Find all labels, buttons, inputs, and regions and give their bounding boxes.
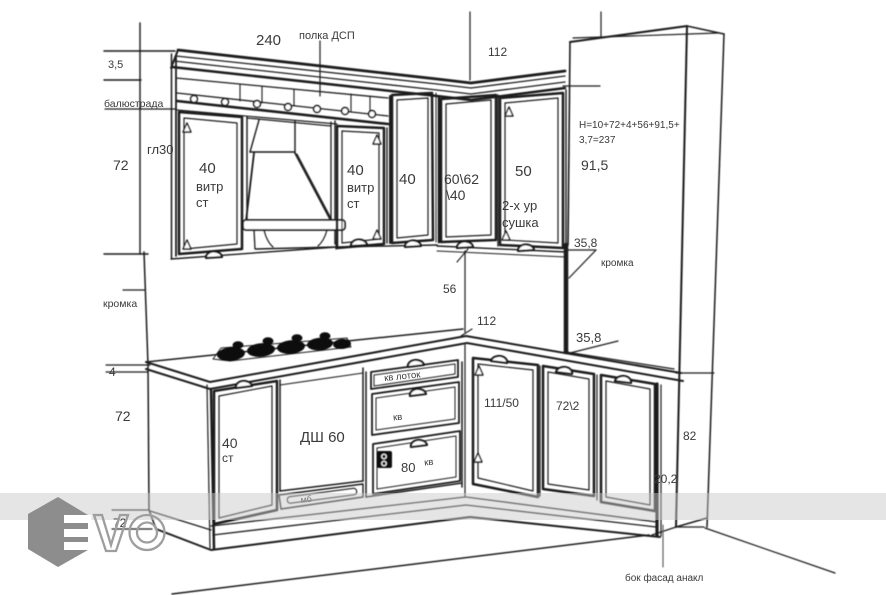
svg-text:20,2: 20,2: [654, 472, 678, 486]
svg-text:полка ДСП: полка ДСП: [299, 30, 355, 42]
svg-text:Н=10+72+4+56+91,5+: Н=10+72+4+56+91,5+: [579, 120, 680, 131]
svg-text:40: 40: [199, 160, 216, 177]
svg-text:3,7=237: 3,7=237: [579, 135, 616, 146]
svg-text:ст: ст: [196, 195, 209, 210]
svg-text:3,5: 3,5: [108, 59, 123, 71]
svg-text:72: 72: [115, 408, 131, 424]
svg-text:40: 40: [399, 171, 416, 188]
svg-text:балюстрада: балюстрада: [104, 98, 163, 110]
svg-text:гл30: гл30: [147, 142, 174, 157]
svg-text:ст: ст: [222, 451, 234, 465]
svg-text:кромка: кромка: [601, 258, 634, 269]
svg-text:витр: витр: [196, 179, 223, 194]
svg-text:ДШ 60: ДШ 60: [300, 429, 345, 446]
svg-text:111/50: 111/50: [484, 396, 519, 410]
svg-text:40: 40: [222, 435, 238, 451]
svg-text:кв: кв: [393, 412, 403, 424]
svg-text:бок фасад анакл: бок фасад анакл: [625, 572, 704, 584]
svg-text:91,5: 91,5: [581, 157, 608, 173]
svg-text:56: 56: [443, 282, 457, 296]
svg-text:112: 112: [477, 314, 496, 328]
svg-text:80: 80: [401, 460, 415, 475]
svg-text:72\2: 72\2: [556, 399, 580, 413]
svg-text:60\62: 60\62: [444, 171, 479, 187]
svg-text:кв: кв: [424, 457, 434, 469]
svg-text:сушка: сушка: [502, 215, 539, 230]
svg-text:ст: ст: [347, 196, 360, 211]
svg-text:витр: витр: [347, 180, 374, 195]
svg-text:35,8: 35,8: [574, 236, 598, 250]
svg-text:40: 40: [347, 162, 364, 179]
svg-text:2-х ур: 2-х ур: [502, 198, 537, 213]
svg-text:112: 112: [488, 45, 507, 59]
svg-text:72: 72: [113, 157, 129, 173]
svg-text:4: 4: [109, 365, 116, 379]
svg-text:50: 50: [515, 163, 532, 180]
svg-text:240: 240: [256, 32, 281, 49]
svg-text:82: 82: [683, 429, 697, 443]
svg-text:35,8: 35,8: [576, 330, 601, 345]
svg-text:\40: \40: [446, 187, 466, 203]
svg-text:кромка: кромка: [103, 298, 137, 310]
